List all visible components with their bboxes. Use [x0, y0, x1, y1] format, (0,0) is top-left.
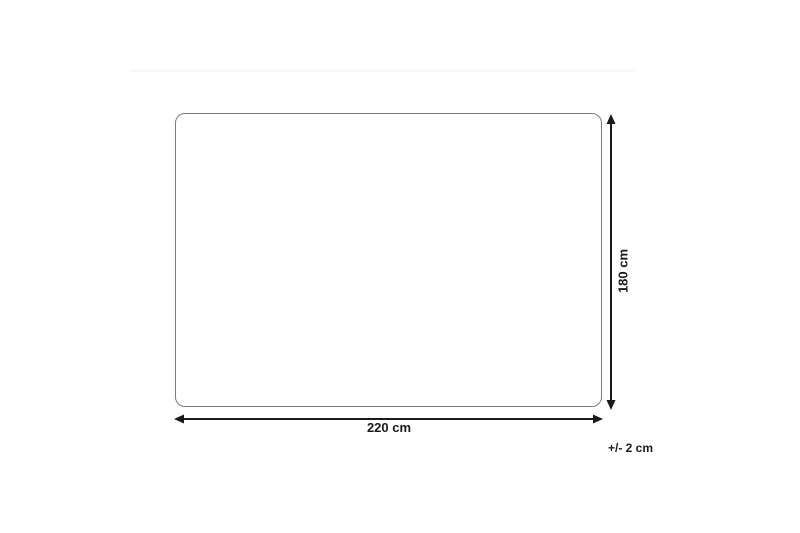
arrow-down-head-icon	[607, 400, 616, 410]
tolerance-label: +/- 2 cm	[608, 442, 653, 454]
faint-top-strip	[130, 69, 637, 72]
arrow-right-head-icon	[593, 415, 603, 424]
width-dimension-label: 220 cm	[367, 421, 411, 434]
product-outline-rectangle	[175, 113, 602, 407]
height-dimension-label: 180 cm	[617, 249, 630, 293]
arrow-up-head-icon	[607, 114, 616, 124]
dimension-diagram: 220 cm 180 cm +/- 2 cm	[0, 0, 800, 533]
arrow-left-head-icon	[174, 415, 184, 424]
